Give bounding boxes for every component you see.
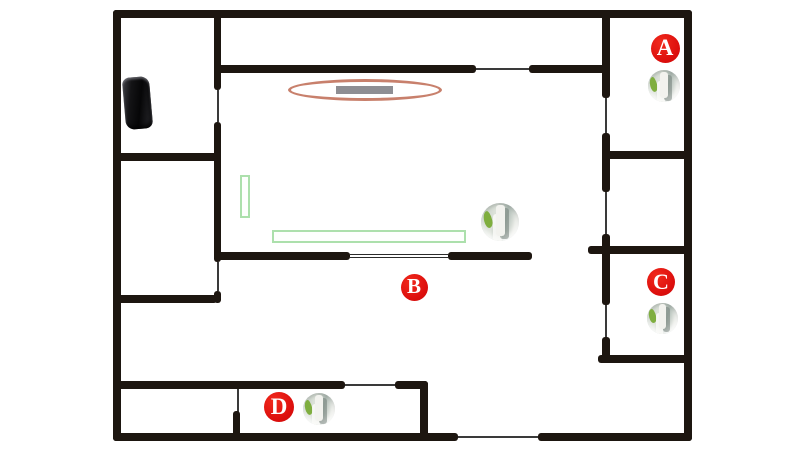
room-label-c: C [647, 268, 675, 296]
room-label-b: B [401, 274, 428, 301]
room-label-a: A [651, 34, 680, 63]
room-label-d: D [264, 392, 294, 422]
floorplan-canvas: ABCD [0, 0, 800, 453]
labels-layer: ABCD [0, 0, 800, 453]
